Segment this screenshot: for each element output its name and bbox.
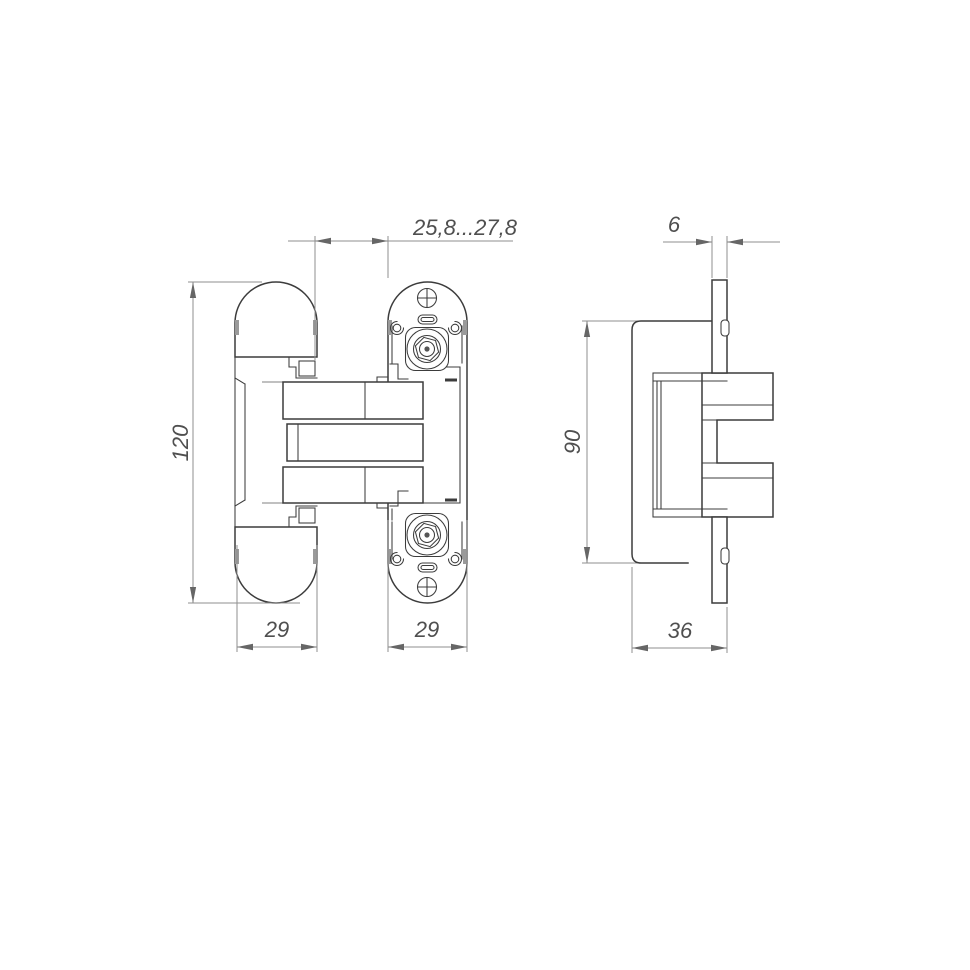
arm-block	[653, 373, 702, 517]
dim-label-door-wing-width: 29	[264, 617, 289, 642]
phillips-screw-icon	[418, 578, 437, 597]
dimension-plate-thickness: 6	[663, 212, 780, 278]
side-view	[582, 280, 773, 603]
hinge-technical-drawing: 25,8...27,8 120 29 29	[0, 0, 970, 970]
knuckle-block	[702, 373, 773, 517]
drawing-canvas: 25,8...27,8 120 29 29	[0, 0, 970, 970]
hinge-arms	[262, 382, 423, 503]
dim-label-plate-thickness: 6	[668, 212, 681, 237]
adjusting-screw-icon	[406, 514, 449, 557]
dim-label-frame-wing-width: 29	[414, 617, 439, 642]
dim-label-body-width: 36	[668, 618, 693, 643]
dim-label-gap: 25,8...27,8	[412, 215, 518, 240]
adjusting-screw-icon	[406, 328, 449, 371]
plate-clip-upper	[721, 320, 729, 336]
dimension-body-height: 90	[560, 321, 590, 563]
dim-label-overall-height: 120	[168, 424, 193, 461]
front-view	[235, 282, 467, 603]
phillips-screw-icon	[418, 289, 437, 308]
dim-label-body-height: 90	[560, 429, 585, 454]
plate-clip-lower	[721, 548, 729, 564]
